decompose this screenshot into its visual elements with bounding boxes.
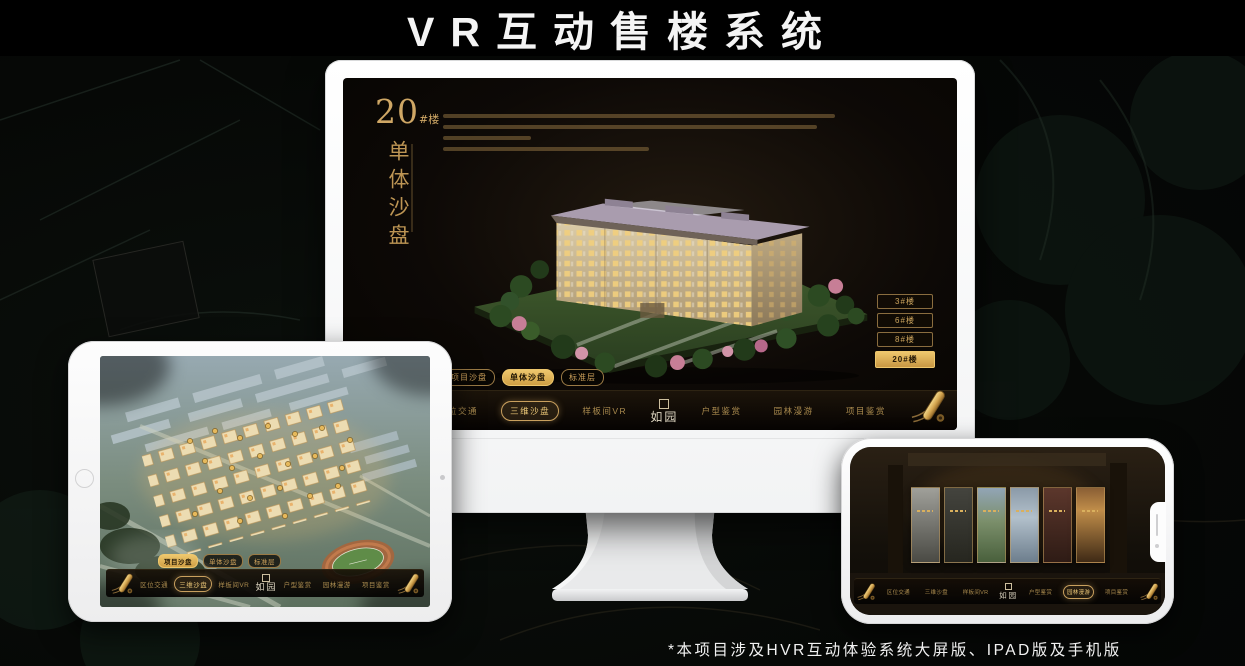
tablet-camera [440, 475, 445, 480]
phone-camera [1155, 544, 1159, 548]
scene-panel-gallery [850, 487, 1165, 563]
building-subtitle-vertical: 单体沙盘 [383, 140, 413, 280]
view-pill-group: 项目沙盘 单体沙盘 标准层 [443, 369, 604, 386]
floor-button-3[interactable]: 3#楼 [877, 294, 933, 309]
phone-mockup: 区位交通 三维沙盘 样板间VR 如园 户型鉴赏 园林漫游 项目鉴赏 [841, 438, 1174, 624]
nav-project-view[interactable]: 项目鉴赏 [1101, 585, 1132, 599]
nav-project-view[interactable]: 项目鉴赏 [357, 576, 395, 592]
phone-notch [1150, 502, 1166, 562]
building-3d-render [465, 156, 875, 384]
scene-panel-shelf[interactable] [1076, 487, 1105, 563]
pill-single-sandtable[interactable]: 单体沙盘 [203, 554, 243, 568]
footnote: *本项目涉及HVR互动体验系统大屏版、IPAD版及手机版 [668, 638, 1122, 660]
scroll-handle-icon-left[interactable] [110, 572, 134, 596]
tablet-navbar: 区位交通 三维沙盘 样板间VR 如园 户型鉴赏 园林漫游 项目鉴赏 [106, 569, 424, 597]
page-title: VR互动售楼系统 [407, 0, 838, 58]
nav-showroom-vr[interactable]: 样板间VR [573, 401, 636, 421]
nav-floorplan-view[interactable]: 户型鉴赏 [692, 401, 750, 421]
nav-3d-sandtable[interactable]: 三维沙盘 [501, 401, 559, 421]
nav-garden-roam[interactable]: 园林漫游 [318, 576, 356, 592]
nav-3d-sandtable[interactable]: 三维沙盘 [174, 576, 212, 592]
floor-button-6[interactable]: 6#楼 [877, 313, 933, 328]
decorative-vertical-bar [411, 144, 413, 232]
floor-button-group: 3#楼 6#楼 8#楼 20#楼 [875, 294, 935, 368]
scroll-handle-icon-left[interactable] [856, 582, 876, 602]
scene-panel-interior-dark[interactable] [944, 487, 973, 563]
nav-3d-sandtable[interactable]: 三维沙盘 [921, 585, 952, 599]
logo-seal-icon [262, 574, 270, 582]
building-suffix: #楼 [419, 113, 439, 126]
scene-panel-lounge[interactable] [1043, 487, 1072, 563]
nav-floorplan-view[interactable]: 户型鉴赏 [279, 576, 317, 592]
pill-project-sandtable[interactable]: 项目沙盘 [158, 554, 198, 568]
nav-project-view[interactable]: 项目鉴赏 [837, 401, 895, 421]
poster-stage: VR互动售楼系统 20#楼 单体沙盘 [0, 0, 1245, 666]
scene-panel-facade[interactable] [1010, 487, 1039, 563]
nav-showroom-vr[interactable]: 样板间VR [959, 585, 993, 599]
nav-location-traffic[interactable]: 区位交通 [135, 576, 173, 592]
scroll-handle-icon-right[interactable] [1139, 582, 1159, 602]
brand-logo: 如园 [255, 574, 277, 593]
title-band: VR互动售楼系统 [0, 0, 1245, 56]
logo-seal-icon [1005, 583, 1012, 590]
phone-screen: 区位交通 三维沙盘 样板间VR 如园 户型鉴赏 园林漫游 项目鉴赏 [850, 447, 1165, 615]
phone-navbar: 区位交通 三维沙盘 样板间VR 如园 户型鉴赏 园林漫游 项目鉴赏 [854, 578, 1161, 604]
pill-standard-floor[interactable]: 标准层 [561, 369, 604, 386]
pill-standard-floor[interactable]: 标准层 [248, 554, 281, 568]
brand-logo: 如园 [999, 583, 1018, 600]
view-pill-group: 项目沙盘 单体沙盘 标准层 [158, 554, 281, 568]
nav-floorplan-view[interactable]: 户型鉴赏 [1025, 585, 1056, 599]
scroll-handle-icon-right[interactable] [396, 572, 420, 596]
description-paragraph-placeholder [443, 114, 835, 158]
tablet-mockup: 项目沙盘 单体沙盘 标准层 区位交通 三维沙盘 样板间VR 如园 户型鉴赏 园林… [68, 341, 452, 622]
nav-showroom-vr[interactable]: 样板间VR [213, 576, 254, 592]
nav-garden-roam[interactable]: 园林漫游 [765, 401, 823, 421]
scene-panel-courtyard[interactable] [911, 487, 940, 563]
tablet-screen: 项目沙盘 单体沙盘 标准层 区位交通 三维沙盘 样板间VR 如园 户型鉴赏 园林… [100, 356, 430, 607]
phone-speaker [1156, 514, 1158, 536]
nav-location-traffic[interactable]: 区位交通 [883, 585, 914, 599]
building-number: 20 [375, 92, 419, 131]
scene-panel-garden[interactable] [977, 487, 1006, 563]
nav-garden-roam[interactable]: 园林漫游 [1063, 585, 1094, 599]
floor-button-20[interactable]: 20#楼 [875, 351, 935, 368]
scroll-handle-icon[interactable] [909, 388, 947, 426]
pill-single-sandtable[interactable]: 单体沙盘 [502, 369, 554, 386]
tablet-home-button [75, 469, 94, 488]
monitor-stand [440, 505, 860, 620]
logo-seal-icon [659, 399, 669, 409]
building-heading: 20#楼 [375, 92, 439, 131]
brand-logo: 如园 [650, 399, 678, 423]
floor-button-8[interactable]: 8#楼 [877, 332, 933, 347]
